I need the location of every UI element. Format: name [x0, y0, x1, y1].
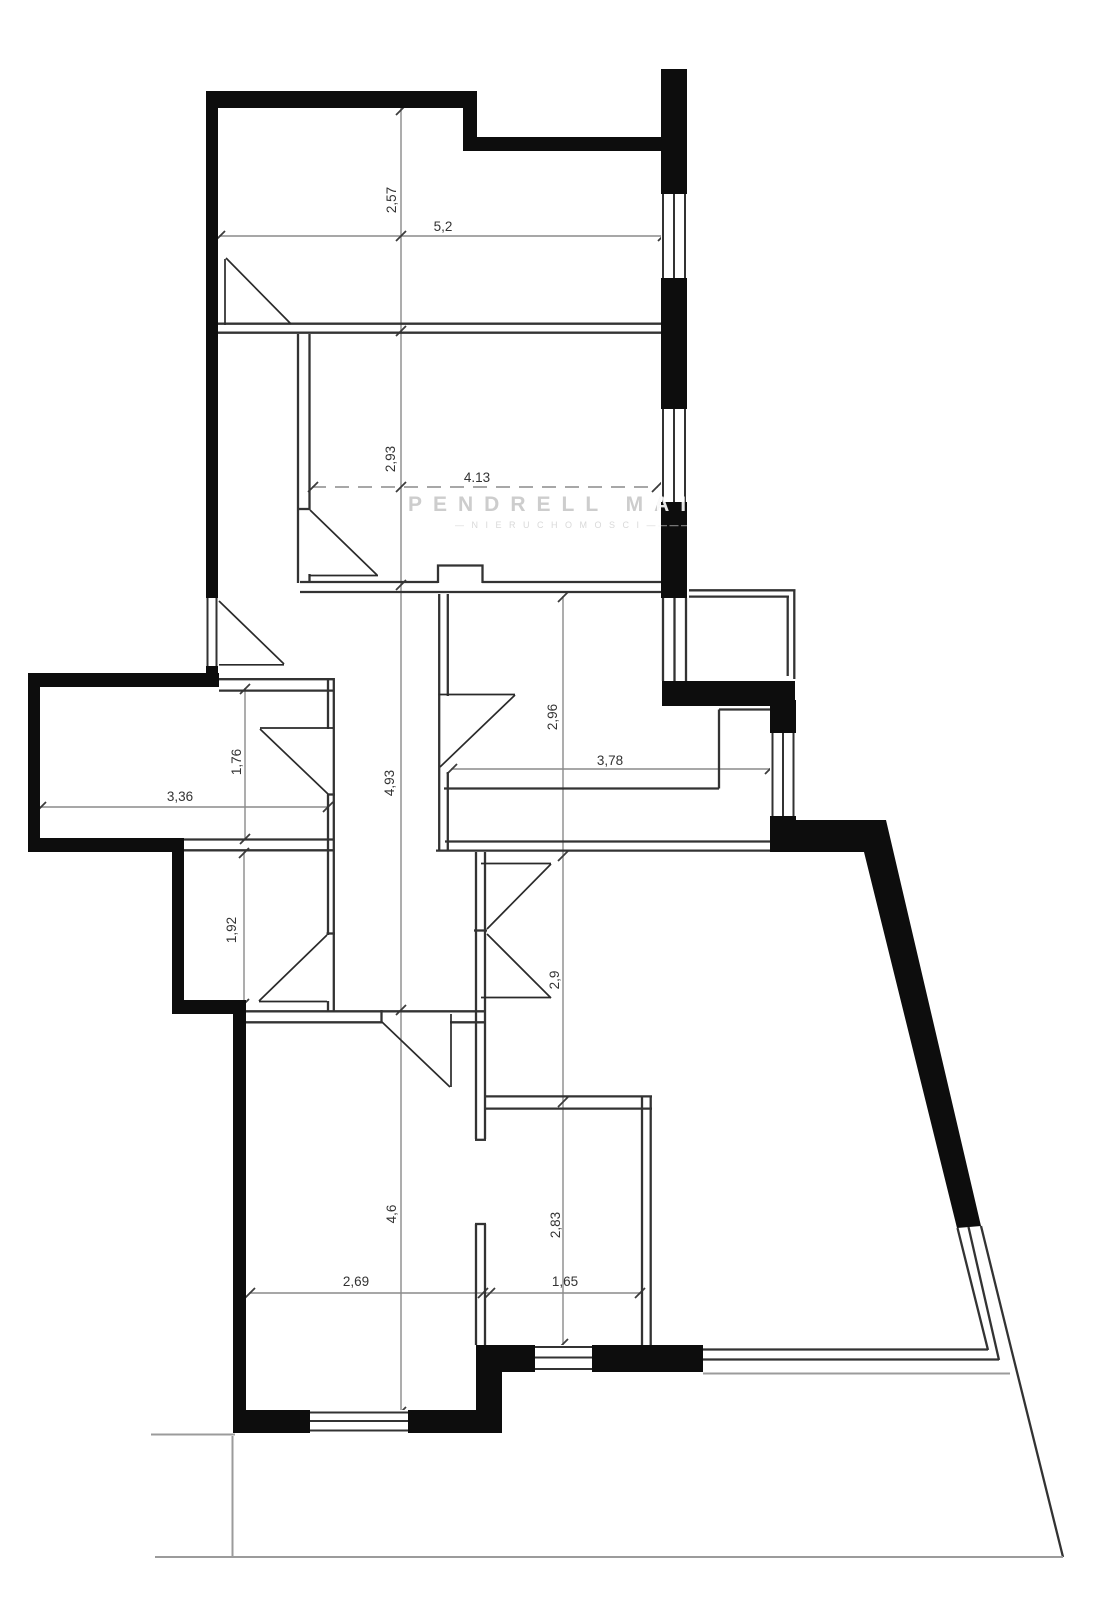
svg-text:2,93: 2,93 — [383, 446, 398, 472]
svg-text:5,2: 5,2 — [434, 219, 453, 234]
svg-text:1,65: 1,65 — [552, 1274, 578, 1289]
svg-text:1,92: 1,92 — [224, 917, 239, 943]
svg-text:— N I E R U C H O M O S C I: — N I E R U C H O M O S C I ——— — [455, 520, 681, 530]
svg-text:4.13: 4.13 — [464, 470, 490, 485]
svg-text:4,6: 4,6 — [384, 1205, 399, 1224]
svg-text:2,69: 2,69 — [343, 1274, 369, 1289]
svg-text:2,9: 2,9 — [547, 971, 562, 990]
svg-text:PENDRELL MAI: PENDRELL MAI — [408, 493, 697, 516]
svg-text:2,57: 2,57 — [384, 187, 399, 213]
svg-text:3,36: 3,36 — [167, 789, 193, 804]
svg-text:1,76: 1,76 — [229, 749, 244, 775]
svg-text:4,93: 4,93 — [382, 770, 397, 796]
svg-text:2,83: 2,83 — [548, 1212, 563, 1238]
svg-text:2,96: 2,96 — [545, 704, 560, 730]
svg-text:3,78: 3,78 — [597, 753, 623, 768]
